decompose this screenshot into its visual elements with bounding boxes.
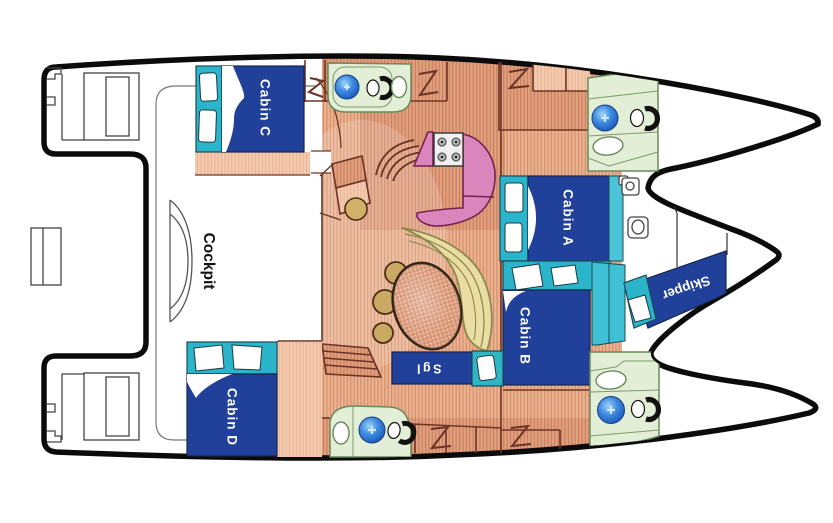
svg-text:Cabin C: Cabin C bbox=[257, 79, 272, 137]
svg-text:Cabin D: Cabin D bbox=[224, 388, 239, 446]
svg-text:Cabin B: Cabin B bbox=[517, 307, 532, 365]
svg-text:Sgl: Sgl bbox=[415, 362, 442, 376]
svg-text:Cabin A: Cabin A bbox=[560, 189, 575, 247]
svg-text:Cockpit: Cockpit bbox=[200, 233, 217, 290]
